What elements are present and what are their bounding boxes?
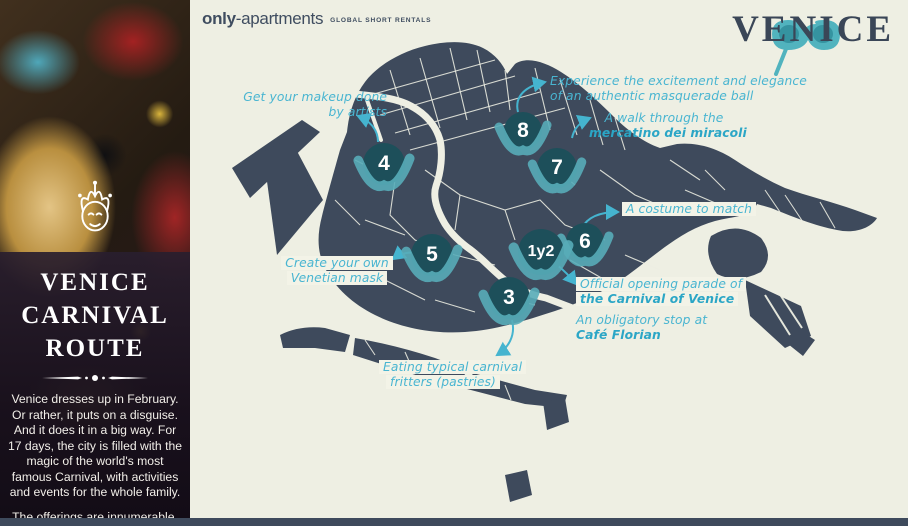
sidebar-paragraph-2: The offerings are innumerable, but we've…	[6, 510, 184, 519]
sidebar-paragraph-1: Venice dresses up in February. Or rather…	[6, 392, 184, 501]
sidebar-title-line: CARNIVAL	[6, 299, 184, 332]
bottom-bar	[0, 518, 908, 526]
jester-mask-icon	[71, 178, 119, 240]
venice-map	[205, 40, 905, 518]
infographic-root: VENICE CARNIVAL ROUTE Venice dresses up …	[0, 0, 908, 526]
page-title-text: VENICE	[732, 9, 894, 50]
sidebar-title-line: ROUTE	[6, 332, 184, 365]
sidebar-title-line: VENICE	[6, 266, 184, 299]
brand-name-light: -apartments	[236, 9, 323, 28]
sidebar-text-panel: VENICE CARNIVAL ROUTE Venice dresses up …	[0, 252, 190, 518]
sidebar: VENICE CARNIVAL ROUTE Venice dresses up …	[0, 0, 190, 518]
ornament-divider-icon	[40, 372, 150, 384]
brand-logo[interactable]: only-apartmentsGLOBAL SHORT RENTALS	[202, 9, 431, 29]
brand-name-bold: only	[202, 9, 236, 28]
sidebar-title: VENICE CARNIVAL ROUTE	[6, 266, 184, 365]
brand-tagline: GLOBAL SHORT RENTALS	[330, 17, 431, 24]
